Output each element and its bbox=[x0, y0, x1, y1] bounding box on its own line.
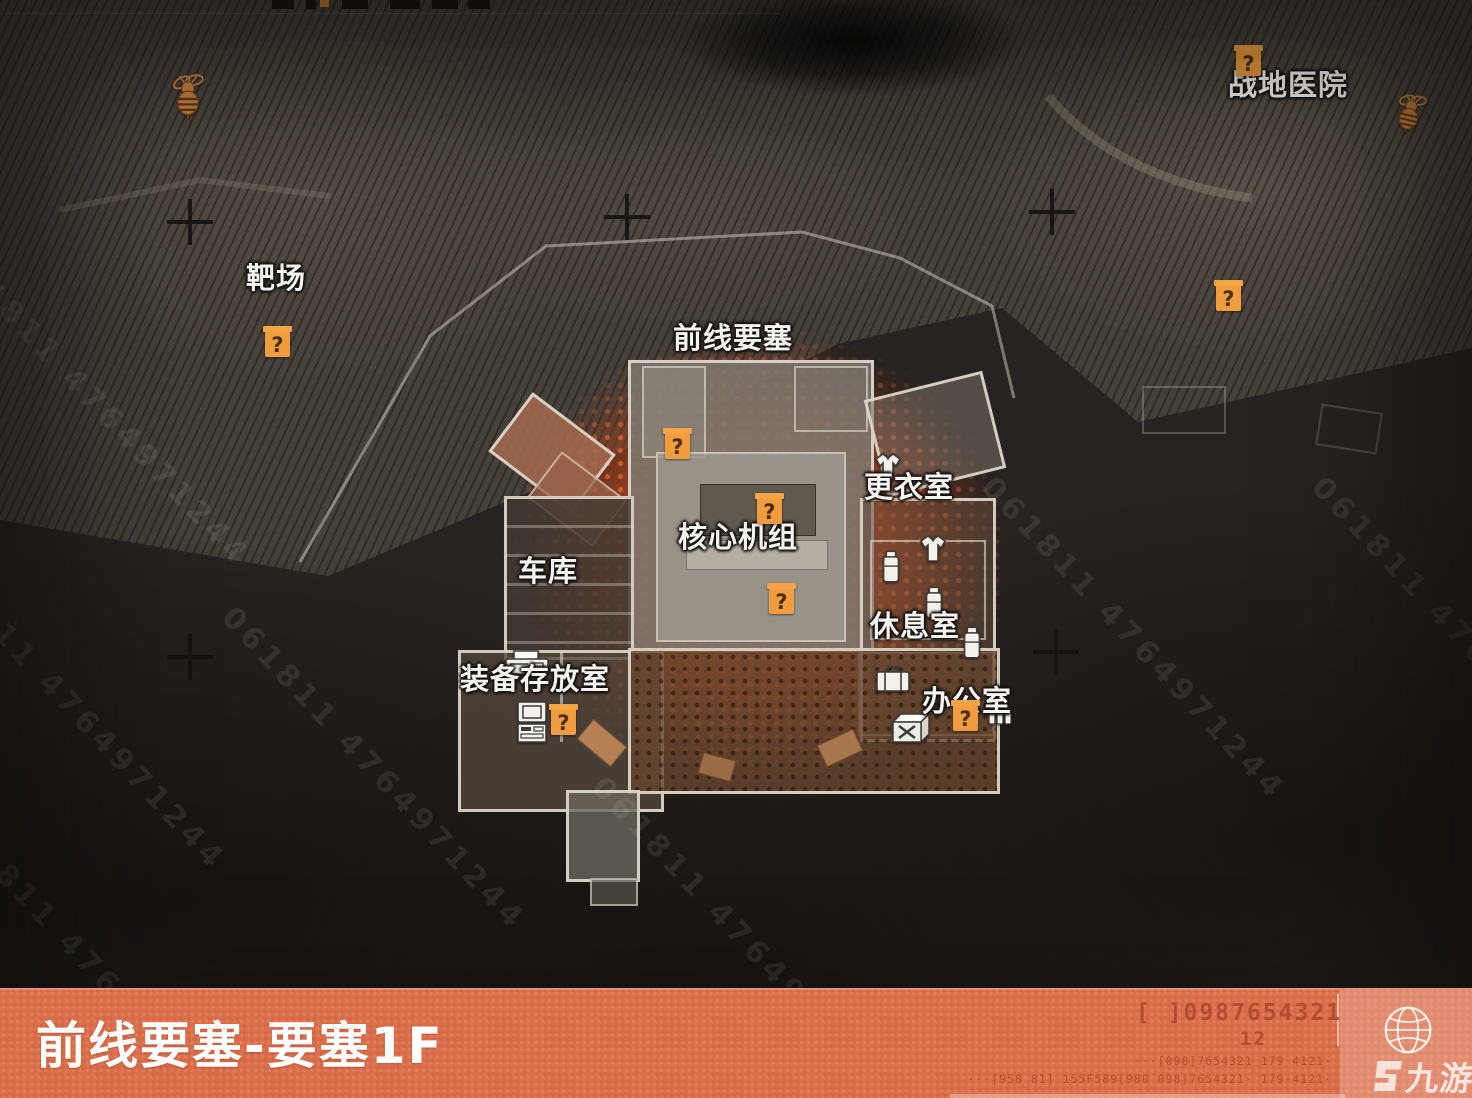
room-label-equipment-storage: 装备存放室 bbox=[460, 664, 610, 696]
top-divider-line bbox=[0, 13, 780, 14]
building-south-hall bbox=[628, 648, 1000, 794]
room-label-garage: 车库 bbox=[518, 556, 578, 588]
building-south-step bbox=[590, 878, 638, 906]
bottle-icon bbox=[880, 550, 902, 584]
grid-cross-marker bbox=[604, 194, 650, 240]
suitcase-icon bbox=[875, 662, 911, 694]
bottle-icon bbox=[961, 626, 983, 660]
bottom-title-banner: 前线要塞-要塞1F [ ]0987654321 12 ···[098]76543… bbox=[0, 988, 1472, 1098]
room-label-changing-room: 更衣室 bbox=[864, 472, 954, 504]
grid-cross-marker bbox=[167, 634, 213, 680]
decorative-code-text: [ ]0987654321 bbox=[1136, 1000, 1342, 1026]
remote-structure-outline bbox=[1142, 386, 1226, 434]
room-label-rest-room: 休息室 bbox=[870, 611, 960, 643]
area-label-frontline-fortress: 前线要塞 bbox=[673, 323, 793, 355]
area-label-shooting-range: 靶场 bbox=[246, 263, 306, 295]
room-label-core-unit: 核心机组 bbox=[678, 522, 798, 554]
mystery-box-marker[interactable]: ? bbox=[1235, 45, 1262, 78]
mystery-box-marker[interactable]: ? bbox=[550, 704, 577, 737]
jacket-icon bbox=[917, 532, 949, 566]
computer-terminal-icon bbox=[516, 700, 548, 744]
map-canvas[interactable]: 061811 4764971244 061811 4764971244 0618… bbox=[0, 0, 1472, 1098]
building-south-annex bbox=[566, 790, 640, 882]
decorative-code-text: ···[098]7654321 179 4121· bbox=[950, 1054, 1332, 1068]
game-map-screenshot: 061811 4764971244 061811 4764971244 0618… bbox=[0, 0, 1472, 1098]
grid-cross-marker bbox=[167, 199, 213, 245]
jiuyou-logo-text: 九游 bbox=[1403, 1052, 1472, 1098]
grid-cross-marker bbox=[1029, 189, 1075, 235]
mystery-box-marker[interactable]: ? bbox=[1215, 280, 1242, 313]
jiuyou-logo: 九游 bbox=[1369, 1052, 1472, 1098]
bee-boss-icon[interactable] bbox=[163, 70, 213, 120]
mystery-box-marker[interactable]: ? bbox=[664, 428, 691, 461]
building-core-room-ne bbox=[794, 366, 868, 432]
jiuyou-logo-glyph bbox=[1370, 1059, 1404, 1093]
mystery-box-marker[interactable]: ? bbox=[264, 326, 291, 359]
banner-bottom-strip bbox=[950, 1094, 1345, 1098]
decorative-code-text: ···[958 81] 155F589[980 098]7654321· 179… bbox=[950, 1072, 1332, 1086]
globe-icon bbox=[1382, 1004, 1434, 1056]
decorative-code-text: 12 bbox=[1240, 1028, 1267, 1050]
cropped-top-text bbox=[272, 0, 492, 12]
mystery-box-marker[interactable]: ? bbox=[756, 493, 783, 526]
mystery-box-marker[interactable]: ? bbox=[952, 700, 979, 733]
map-floor-title: 前线要塞-要塞1F bbox=[36, 1006, 444, 1078]
mystery-box-marker[interactable]: ? bbox=[768, 583, 795, 616]
grid-cross-marker bbox=[1033, 629, 1079, 675]
